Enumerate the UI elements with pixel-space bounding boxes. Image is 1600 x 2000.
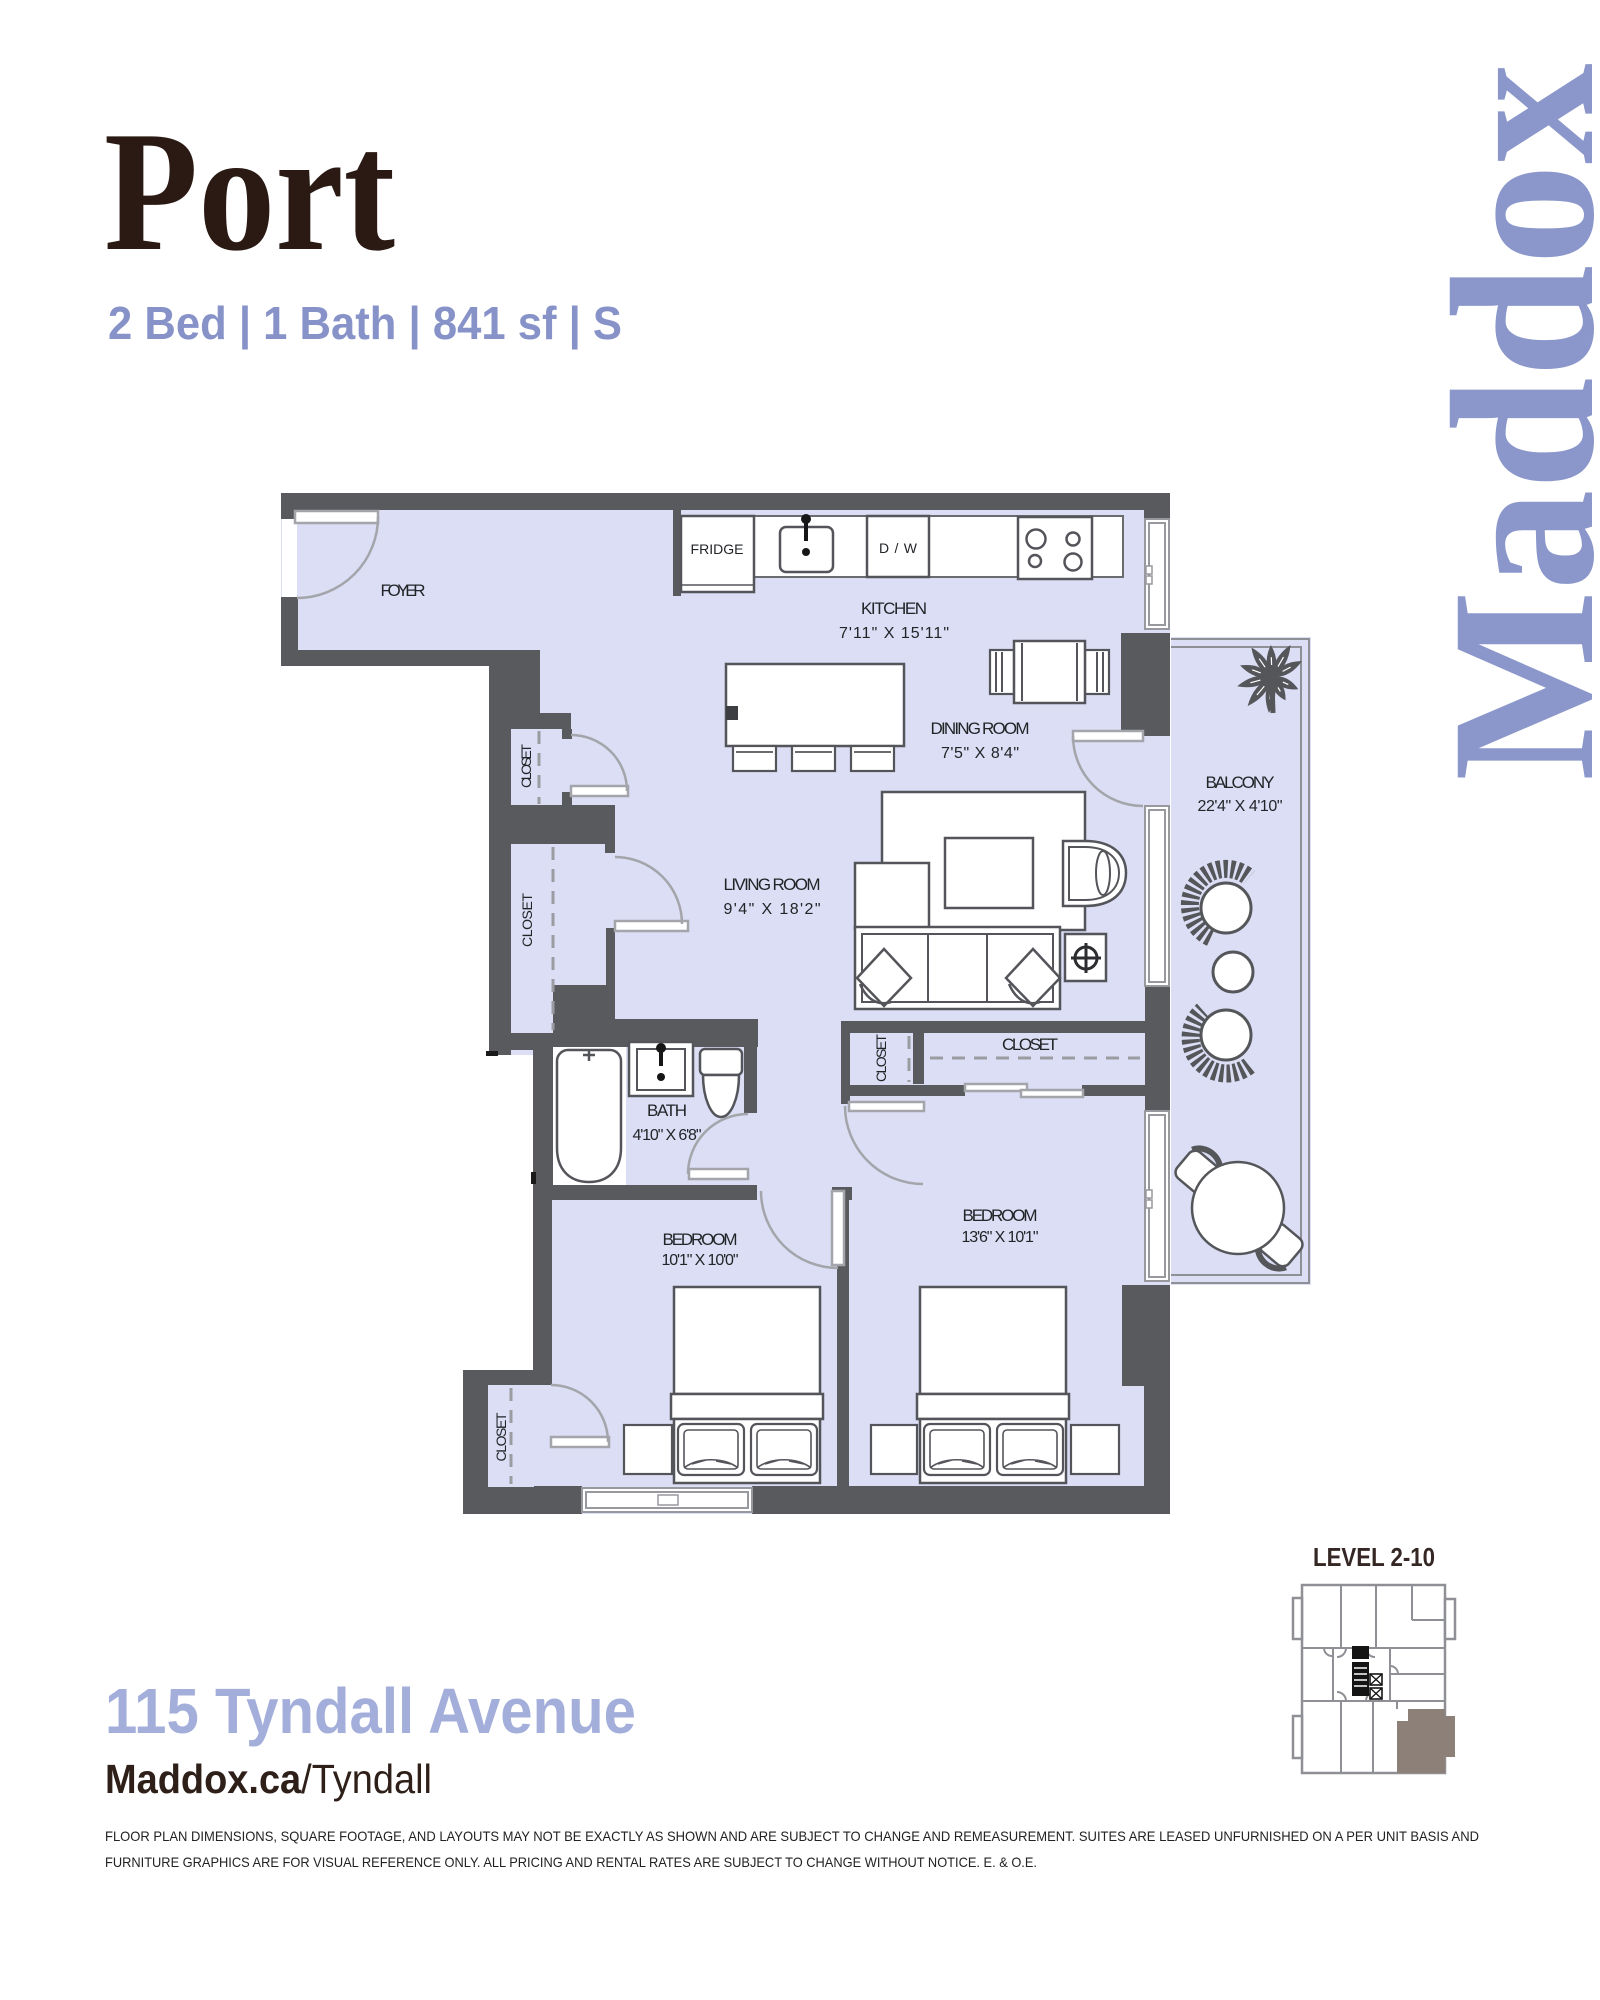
svg-text:BATH: BATH (647, 1101, 687, 1120)
svg-text:FOYER: FOYER (381, 581, 426, 600)
svg-text:D/W: D/W (879, 540, 918, 556)
svg-text:LIVING ROOM: LIVING ROOM (724, 875, 821, 894)
svg-text:FURNITURE GRAPHICS ARE FOR VIS: FURNITURE GRAPHICS ARE FOR VISUAL REFERE… (105, 1854, 1037, 1870)
svg-text:BEDROOM: BEDROOM (663, 1230, 738, 1249)
svg-text:Maddox.ca/Tyndall: Maddox.ca/Tyndall (105, 1756, 432, 1802)
svg-text:10'1" X 10'0": 10'1" X 10'0" (662, 1252, 739, 1269)
svg-text:BEDROOM: BEDROOM (963, 1206, 1038, 1225)
svg-text:Port: Port (104, 97, 395, 287)
svg-text:CLOSET: CLOSET (518, 744, 534, 788)
svg-text:9'4" X 18'2": 9'4" X 18'2" (724, 901, 821, 918)
svg-text:FLOOR PLAN DIMENSIONS, SQUARE: FLOOR PLAN DIMENSIONS, SQUARE FOOTAGE, A… (105, 1828, 1479, 1844)
svg-text:BALCONY: BALCONY (1206, 773, 1275, 792)
svg-text:CLOSET: CLOSET (873, 1034, 889, 1082)
svg-text:Maddox: Maddox (1410, 63, 1600, 781)
svg-text:2 Bed | 1 Bath | 841 sf | S: 2 Bed | 1 Bath | 841 sf | S (108, 297, 622, 349)
svg-text:115 Tyndall Avenue: 115 Tyndall Avenue (105, 1675, 636, 1747)
svg-text:DINING ROOM: DINING ROOM (931, 719, 1030, 738)
svg-text:7'5" X 8'4": 7'5" X 8'4" (941, 745, 1019, 762)
svg-text:FRIDGE: FRIDGE (691, 541, 744, 557)
svg-text:4'10" X 6'8": 4'10" X 6'8" (633, 1127, 702, 1144)
svg-text:CLOSET: CLOSET (519, 893, 535, 947)
svg-text:KITCHEN: KITCHEN (861, 599, 927, 618)
svg-text:CLOSET: CLOSET (493, 1412, 509, 1461)
svg-text:7'11" X 15'11": 7'11" X 15'11" (839, 625, 949, 642)
svg-text:CLOSET: CLOSET (1002, 1035, 1058, 1054)
svg-text:LEVEL 2-10: LEVEL 2-10 (1313, 1542, 1435, 1572)
svg-text:22'4" X 4'10": 22'4" X 4'10" (1198, 798, 1283, 815)
svg-text:13'6" X 10'1": 13'6" X 10'1" (962, 1229, 1039, 1246)
